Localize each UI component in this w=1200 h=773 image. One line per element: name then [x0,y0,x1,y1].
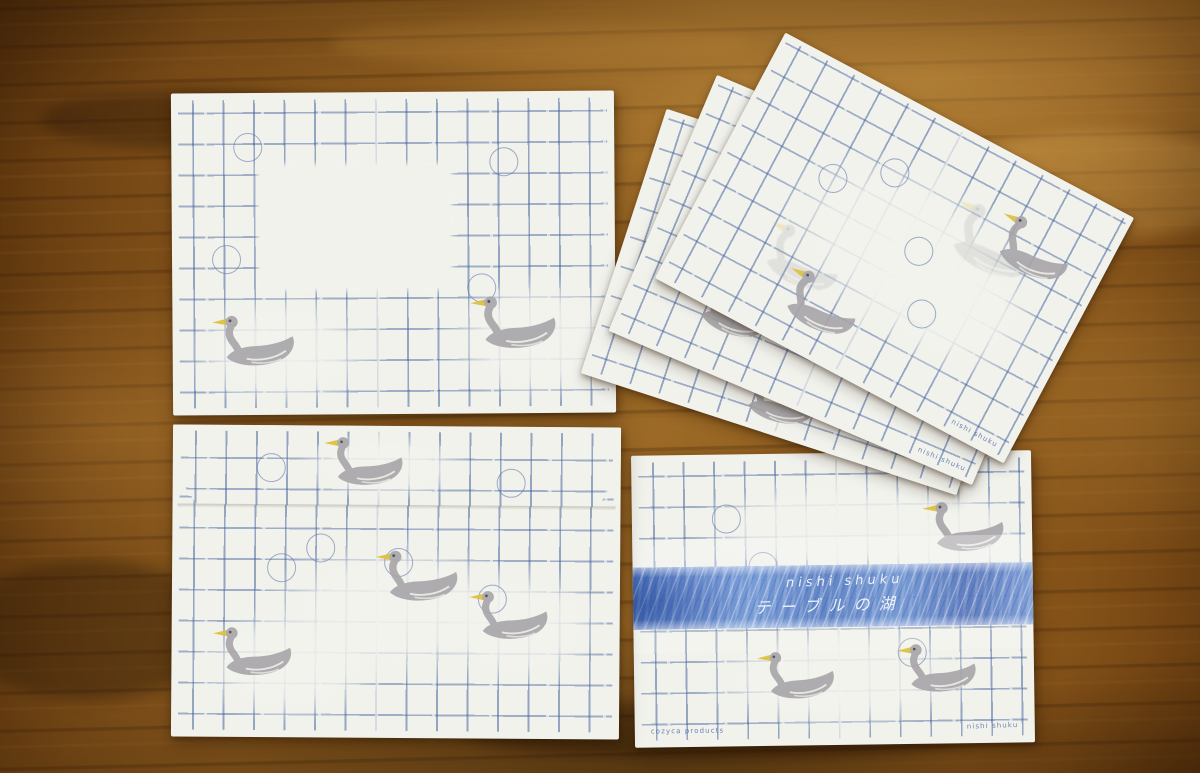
circle-motif-icon [267,553,296,582]
obi-band: nishi shuku テーブルの湖 [633,562,1034,630]
swan-stamp-icon [464,289,564,356]
swan-stamp-icon [370,544,466,609]
pack-brand-credit: cozyca products [651,727,724,736]
swan-stamp-icon [892,637,985,700]
circle-motif-icon [306,533,335,562]
swan-stamp-icon [464,584,556,646]
circle-motif-icon [233,133,262,162]
address-panel [259,166,450,289]
wood-grain-streak [330,20,750,66]
swan-stamp-icon [206,309,302,374]
letter-pack: nishi shuku テーブルの湖 cozyca products nishi… [631,450,1035,748]
pack-artist-credit: nishi shuku [967,721,1019,731]
circle-motif-icon [489,147,518,176]
circle-motif-icon [257,453,286,482]
swan-stamp-icon [207,621,299,683]
envelope-back [171,424,621,739]
envelope-flap [173,424,622,507]
circle-motif-icon [212,245,241,274]
envelope-front [171,90,616,415]
circle-motif-icon [497,469,526,498]
swan-stamp-icon [319,430,411,492]
swan-stamp-icon [752,645,843,706]
scene: nishi shuku テーブルの湖 cozyca products nishi… [0,0,1200,773]
